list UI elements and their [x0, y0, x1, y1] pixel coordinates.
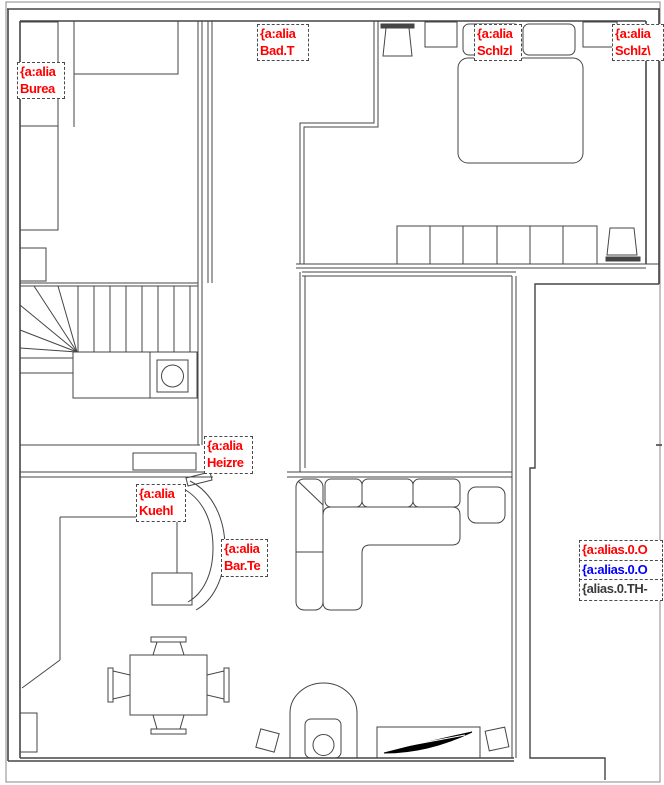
label-line: {a:alia: [260, 25, 306, 42]
device-label-heizung[interactable]: {a:alia Heizre: [204, 436, 253, 474]
device-label-kuehlschrank[interactable]: {a:alia Kuehl: [136, 484, 186, 522]
device-label-bad[interactable]: {a:alia Bad.T: [257, 24, 309, 61]
radiator: [133, 453, 196, 470]
floorplan-canvas: {a:alia Burea {a:alia Bad.T {a:alia Schl…: [0, 0, 664, 785]
label-line: {a:alia: [20, 63, 62, 80]
interior-walls: [20, 21, 659, 758]
label-line: {a:alia: [615, 25, 661, 42]
device-label-schlz-left[interactable]: {a:alia Schlzl: [474, 24, 522, 61]
label-line: Kuehl: [139, 502, 183, 519]
label-line: {a:alia: [224, 540, 265, 557]
device-label-schlz-right[interactable]: {a:alia Schlz\: [612, 24, 664, 61]
label-line: {a:alias.0.O: [582, 541, 660, 558]
bureau-furniture: [20, 21, 178, 281]
outer-walls: [7, 9, 662, 761]
device-label-bar[interactable]: {a:alia Bar.Te: [221, 539, 268, 577]
staircase: [20, 286, 197, 398]
label-line: Schlzl: [477, 42, 519, 59]
terrace-boundary: [530, 284, 659, 780]
living-room-furniture: [256, 479, 509, 758]
label-line: Burea: [20, 80, 62, 97]
drawing-frame: [6, 2, 660, 782]
label-line: {a:alias.0.O: [582, 561, 660, 578]
label-line: Bar.Te: [224, 557, 265, 574]
kitchen-furniture: [20, 472, 229, 752]
label-line: {a:alia: [207, 437, 250, 454]
floorplan-drawing: [0, 0, 664, 785]
device-label-terrace-blue[interactable]: {a:alias.0.O: [579, 560, 663, 581]
device-label-bureau[interactable]: {a:alia Burea: [17, 62, 65, 99]
label-line: Bad.T: [260, 42, 306, 59]
label-line: {a:alia: [477, 25, 519, 42]
label-line: Heizre: [207, 454, 250, 471]
device-label-terrace-th[interactable]: {alias.0.TH-: [579, 579, 663, 601]
device-label-terrace-red[interactable]: {a:alias.0.O: [579, 540, 663, 561]
label-line: {a:alia: [139, 485, 183, 502]
label-line: {alias.0.TH-: [582, 580, 660, 597]
label-line: Schlz\: [615, 42, 661, 59]
